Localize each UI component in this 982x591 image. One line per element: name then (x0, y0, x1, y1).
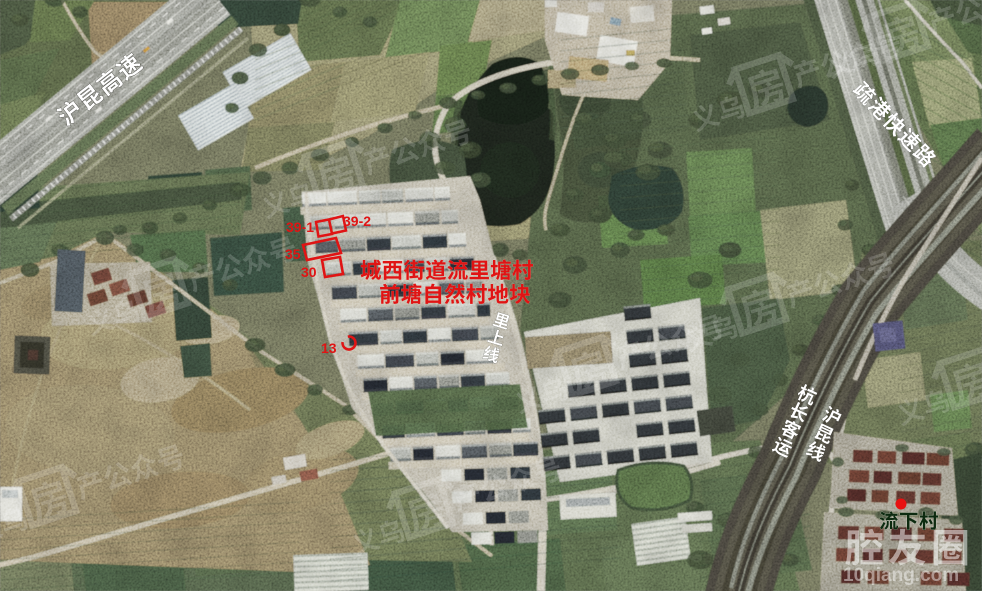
svg-text:39-2: 39-2 (343, 213, 371, 229)
svg-text:10qiang.com: 10qiang.com (843, 565, 959, 586)
svg-text:35: 35 (285, 246, 301, 262)
svg-text:13: 13 (321, 340, 337, 356)
svg-text:30: 30 (301, 264, 317, 280)
svg-text:39-1: 39-1 (286, 219, 314, 235)
